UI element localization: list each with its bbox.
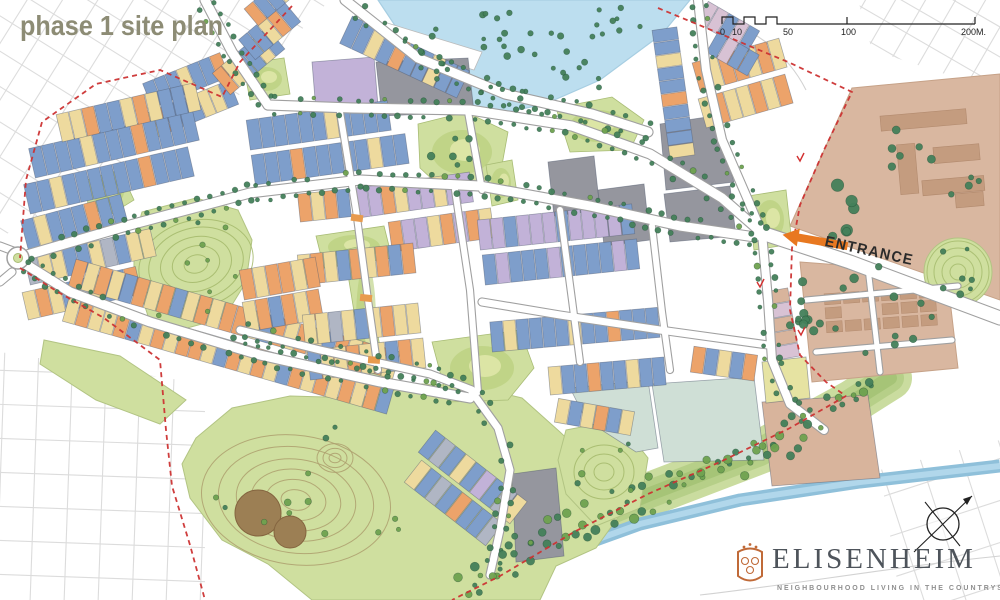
water-tank xyxy=(274,516,306,548)
scale-tick-label-100: 100 xyxy=(841,27,856,37)
site-plan-map xyxy=(0,0,1000,600)
site-plan-stage: phase 1 site plan 0 10 50 100 200M. ENTR… xyxy=(0,0,1000,600)
logo-tagline: NEIGHBOURHOOD LIVING IN THE COUNTRYSIDE xyxy=(777,585,1000,592)
page-title: phase 1 site plan xyxy=(20,10,223,42)
scale-tick-label-10: 10 xyxy=(732,27,742,37)
logo-wordmark: ELISENHEIM xyxy=(772,543,976,576)
scale-tick-label-200: 200M. xyxy=(961,27,986,37)
scale-tick-label-50: 50 xyxy=(783,27,793,37)
scale-tick-label-0: 0 xyxy=(720,27,725,37)
